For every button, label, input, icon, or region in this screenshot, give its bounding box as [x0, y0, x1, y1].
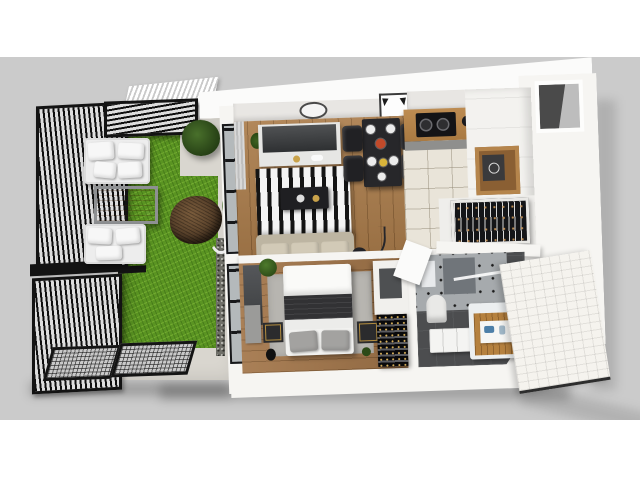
entrance-niche: [535, 80, 585, 134]
white-plate: [367, 157, 376, 166]
bed-footer: [285, 318, 353, 330]
soap-bottle: [499, 325, 505, 334]
letterbox-bottom: [0, 420, 640, 480]
yellow-dish: [379, 158, 387, 166]
double-bed: [283, 264, 354, 356]
wall-hung-toilet: [426, 294, 447, 323]
gold-kettle: [293, 155, 300, 162]
white-duvet: [283, 264, 352, 296]
gray-dresser: [244, 305, 261, 344]
white-dish: [311, 155, 323, 161]
burner: [421, 120, 431, 130]
open-wardrobe-hangers: [451, 197, 531, 246]
floorplan-render: [0, 0, 640, 480]
dark-throw-blanket: [284, 294, 353, 320]
white-plate: [366, 125, 375, 134]
red-dish: [375, 138, 385, 148]
media-sideboard: [258, 122, 341, 167]
dining-chair: [343, 155, 364, 182]
tv-flat: [262, 124, 337, 153]
oven-niche: [475, 146, 521, 196]
gray-pillow-left: [289, 330, 319, 352]
burner: [438, 119, 448, 129]
wine-rack-shelf: [377, 314, 409, 367]
dining-chair: [342, 125, 363, 152]
white-plate: [378, 172, 386, 180]
gray-pillow-right: [321, 330, 349, 350]
gold-bowl: [312, 195, 319, 202]
cooktop: [416, 112, 457, 137]
letterbox-top: [0, 0, 640, 57]
white-decor: [296, 194, 304, 202]
black-coffee-table: [280, 186, 329, 210]
vanity-cabinet: [429, 328, 472, 353]
white-plate: [386, 124, 395, 133]
built-in-oven: [482, 154, 505, 181]
white-plate: [389, 156, 398, 165]
oven-dial: [488, 162, 499, 173]
apartment: [0, 0, 640, 480]
nightstand-left: [263, 322, 284, 343]
dining-table: [362, 118, 402, 187]
blue-towel: [484, 326, 494, 333]
